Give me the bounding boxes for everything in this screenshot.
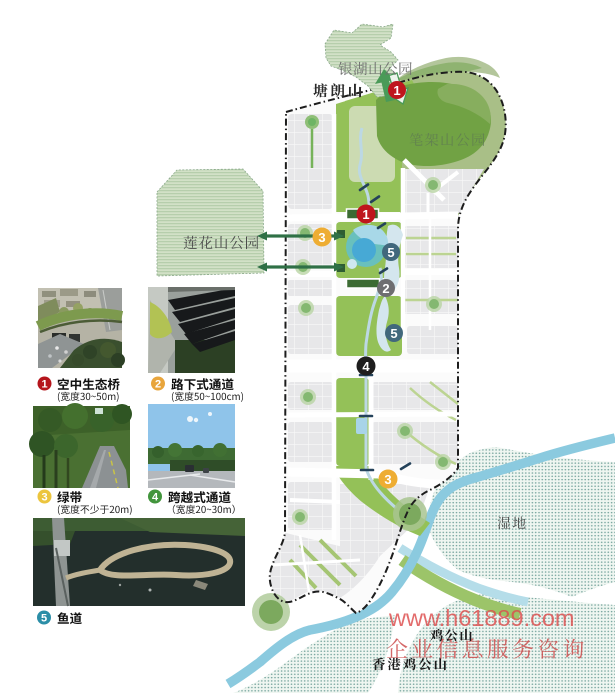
svg-text:4: 4: [362, 359, 370, 374]
svg-text:1: 1: [362, 207, 369, 222]
svg-text:1: 1: [393, 83, 400, 98]
svg-text:1: 1: [41, 379, 47, 391]
svg-text:3: 3: [318, 230, 325, 245]
svg-text:5: 5: [387, 245, 394, 260]
svg-text:2: 2: [155, 379, 161, 391]
svg-text:3: 3: [384, 472, 391, 487]
svg-text:4: 4: [152, 492, 159, 504]
svg-text:www.h61889.com: www.h61889.com: [388, 605, 575, 631]
svg-text:2: 2: [382, 281, 389, 296]
svg-text:5: 5: [390, 326, 397, 341]
svg-text:5: 5: [41, 613, 47, 625]
svg-text:3: 3: [41, 492, 47, 504]
